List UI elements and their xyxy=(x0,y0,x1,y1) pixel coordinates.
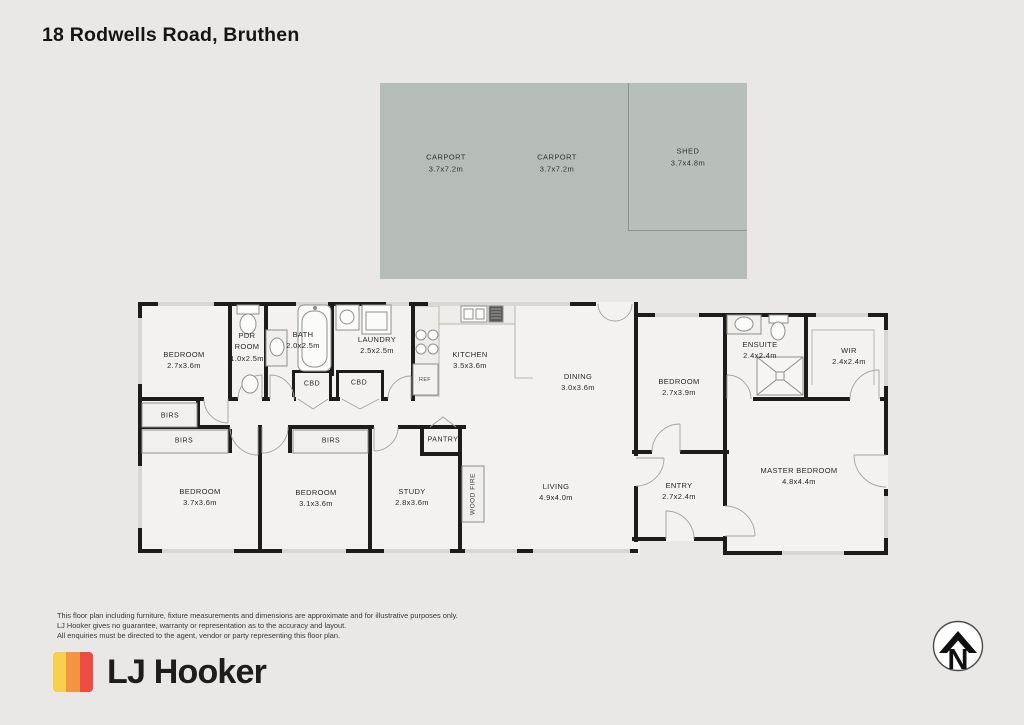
room-label-bedroom-3: BEDROOM3.7x3.6m xyxy=(179,486,220,509)
pdr-basin-icon xyxy=(242,375,258,393)
washing-machine-icon xyxy=(362,305,391,334)
room-label-bedroom-1: BEDROOM2.7x3.6m xyxy=(163,349,204,372)
room-label-study: STUDY2.8x3.6m xyxy=(395,486,429,509)
laundry-sink-icon xyxy=(336,305,359,330)
room-label-master-bedroom: MASTER BEDROOM4.8x4.4m xyxy=(761,465,838,488)
shower-icon xyxy=(757,357,803,395)
room-label-dining: DINING3.0x3.6m xyxy=(561,371,595,394)
room-label-bath: BATH2.0x2.5m xyxy=(286,329,320,352)
disclaimer-line-3: All enquiries must be directed to the ag… xyxy=(57,631,458,641)
label-birs-1: BIRS xyxy=(161,413,179,420)
disclaimer-line-2: LJ Hooker gives no guarantee, warranty o… xyxy=(57,621,458,631)
label-pantry: PANTRY xyxy=(428,437,459,444)
room-label-living: LIVING4.9x4.0m xyxy=(539,481,573,504)
label-cbd-1: CBD xyxy=(304,381,320,388)
room-label-bedroom-4: BEDROOM3.1x3.6m xyxy=(295,487,336,510)
label-birs-2: BIRS xyxy=(175,438,193,445)
label-ref: REF xyxy=(419,377,431,383)
room-label-entry: ENTRY2.7x2.4m xyxy=(662,480,696,503)
room-label-pdr-room: PDR ROOM1.0x2.5m xyxy=(226,330,268,364)
disclaimer-text: This floor plan including furniture, fix… xyxy=(57,611,458,642)
room-label-bedroom-2: BEDROOM2.7x3.9m xyxy=(658,376,699,399)
ensuite-vanity-icon xyxy=(727,315,761,334)
label-cbd-2: CBD xyxy=(351,380,367,387)
svg-text:N: N xyxy=(948,644,969,676)
north-compass-icon: N xyxy=(923,611,993,681)
label-wood-fire: WOOD FIRE xyxy=(470,473,477,515)
label-birs-3: BIRS xyxy=(322,438,340,445)
bath-vanity-icon xyxy=(266,330,287,366)
disclaimer-line-1: This floor plan including furniture, fix… xyxy=(57,611,458,621)
lj-hooker-logo-text: LJ Hooker xyxy=(107,653,266,692)
room-label-laundry: LAUNDRY2.5x2.5m xyxy=(358,334,396,357)
room-label-kitchen: KITCHEN3.5x3.6m xyxy=(452,349,487,372)
lj-hooker-stripes-icon xyxy=(53,652,93,692)
page: { "title": "18 Rodwells Road, Bruthen", … xyxy=(0,0,1024,725)
lj-hooker-logo: LJ Hooker xyxy=(53,652,266,692)
room-label-ensuite: ENSUITE2.4x2.4m xyxy=(743,339,778,362)
kitchen-sink-icon xyxy=(461,306,503,322)
room-label-wir: WIR2.4x2.4m xyxy=(832,345,866,368)
